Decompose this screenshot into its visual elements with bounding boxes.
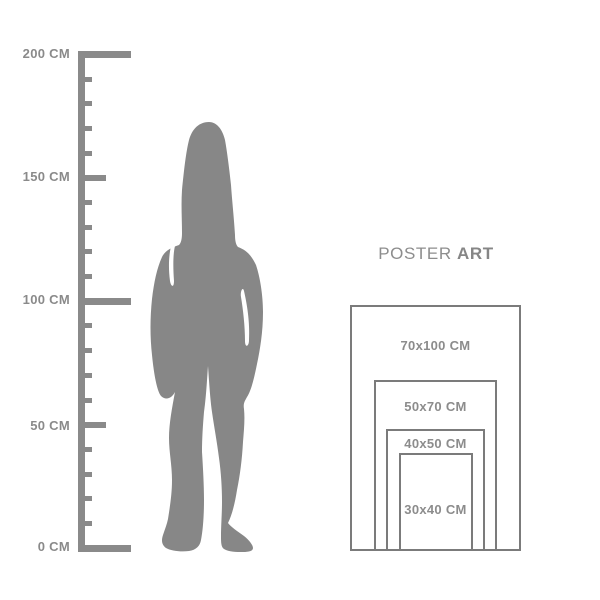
size-label-50x70: 50x70 CM <box>365 400 506 414</box>
brand-title: POSTER ART <box>350 244 522 264</box>
brand-word-regular: POSTER <box>378 244 452 263</box>
size-label-30x40: 30x40 CM <box>365 503 506 517</box>
size-label-40x50: 40x50 CM <box>365 437 506 451</box>
size-label-70x100: 70x100 CM <box>365 339 506 353</box>
size-guide-diagram: 200 CM 150 CM 100 CM 50 CM 0 CM POSTER A… <box>0 0 600 600</box>
brand-word-bold: ART <box>457 244 494 263</box>
